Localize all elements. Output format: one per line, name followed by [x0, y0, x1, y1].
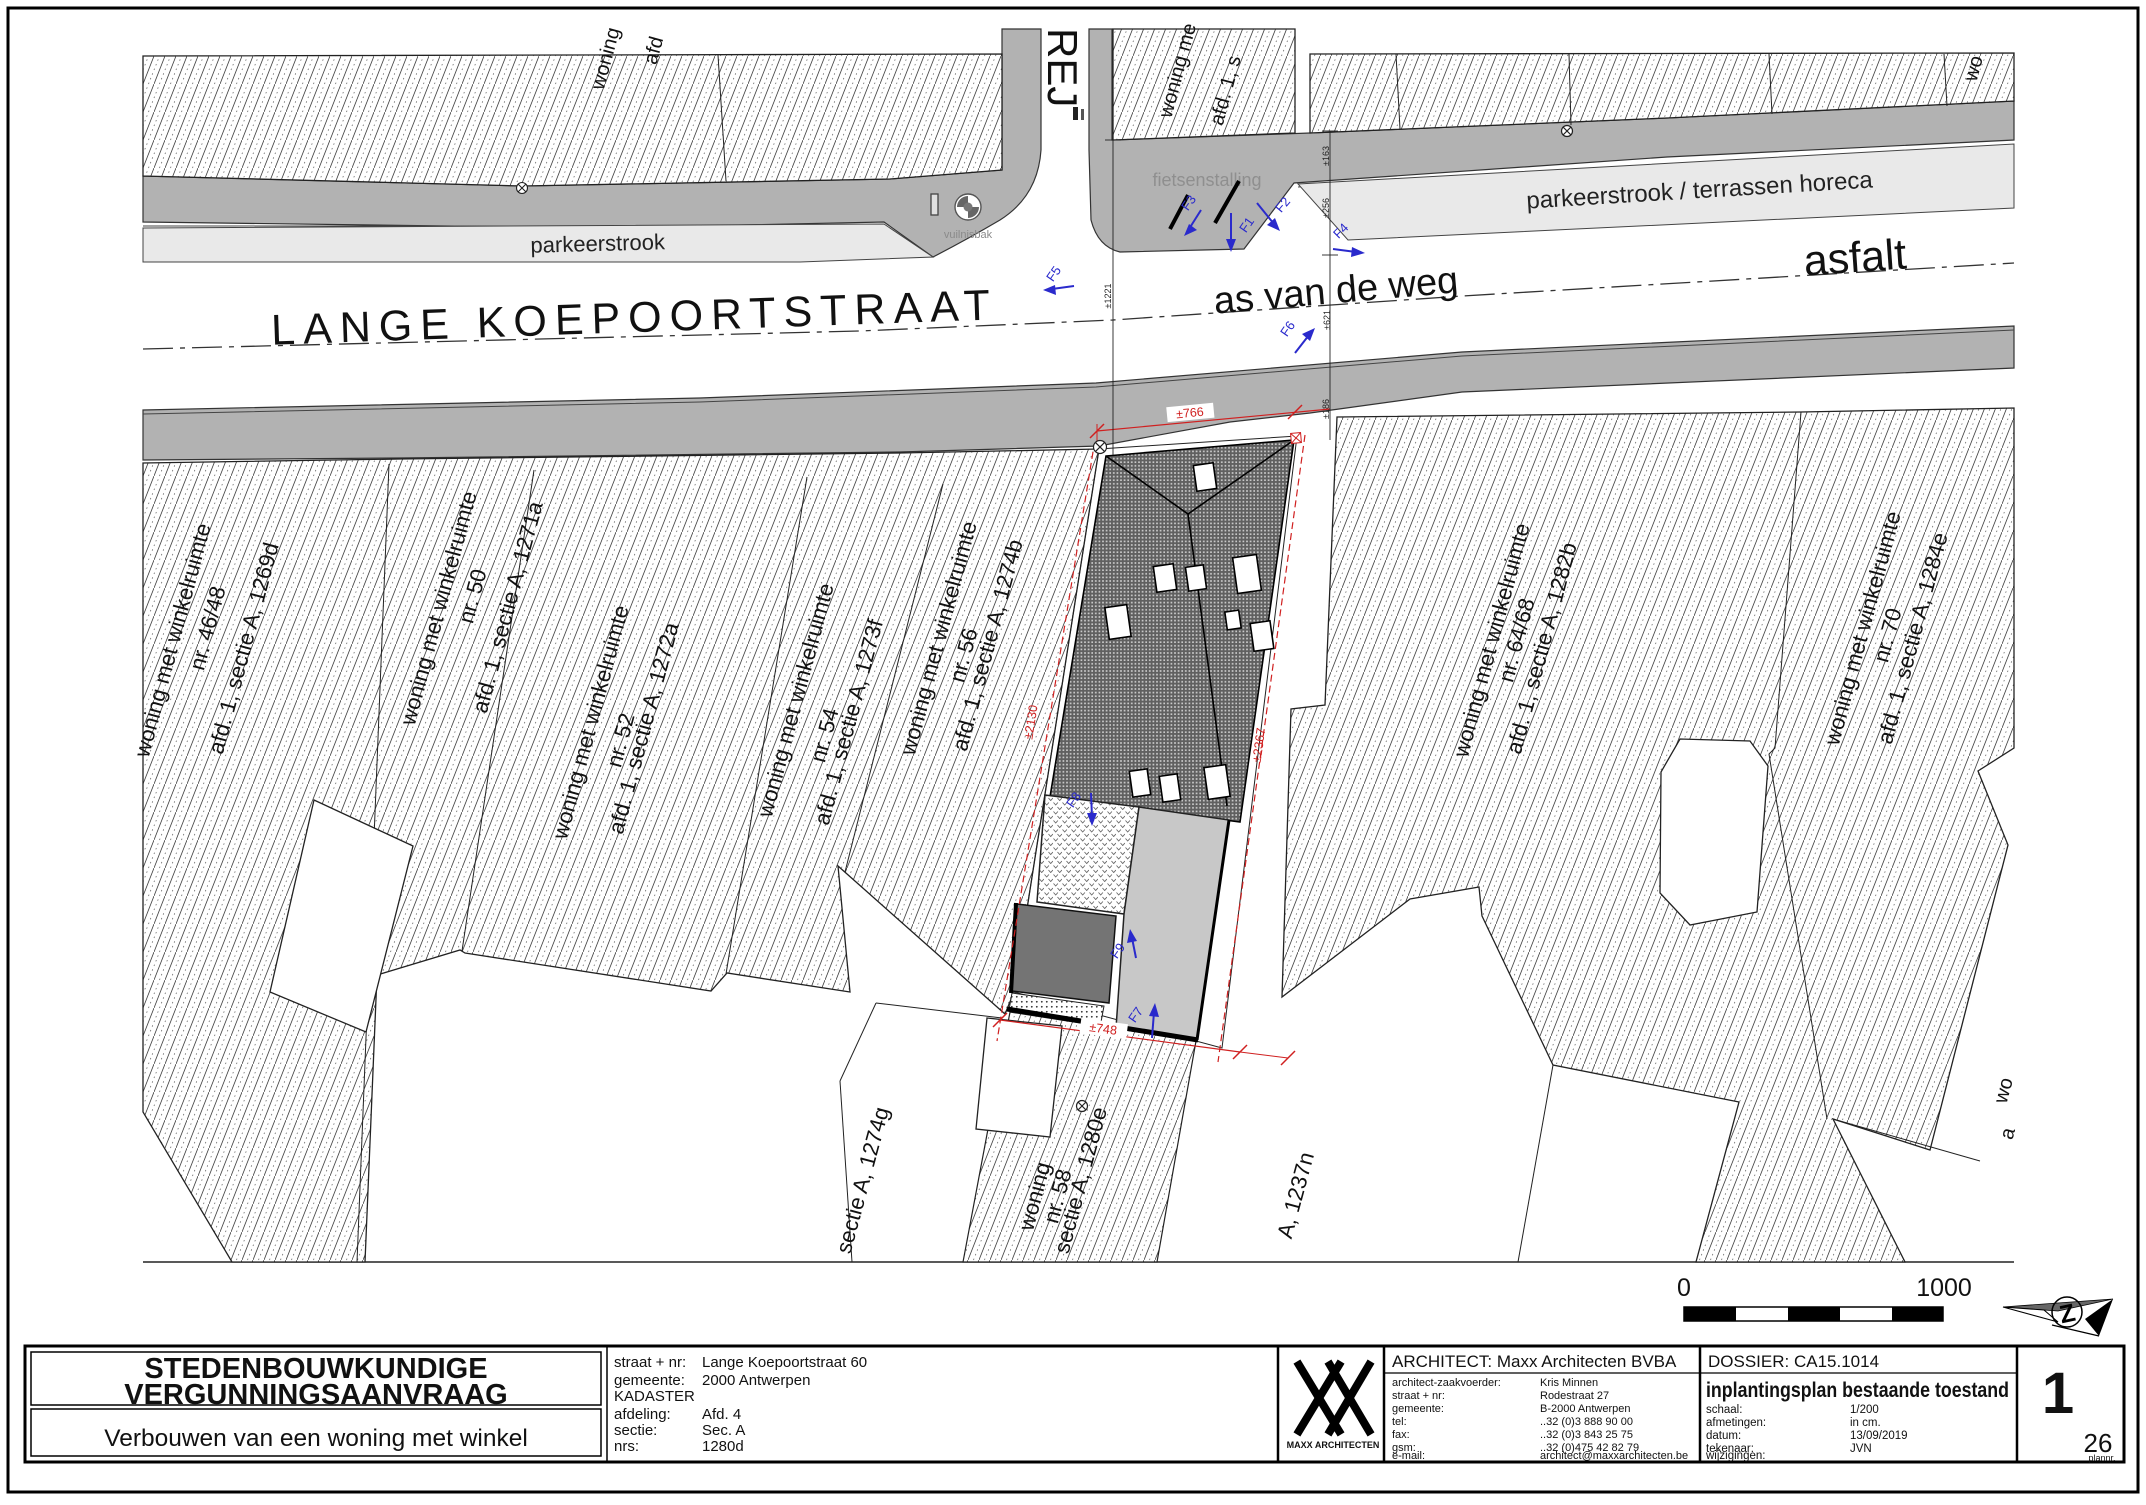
- svg-text:0: 0: [1677, 1274, 1691, 1302]
- svg-text:±766: ±766: [1175, 405, 1204, 422]
- svg-text:MAXX ARCHITECTEN: MAXX ARCHITECTEN: [1287, 1440, 1380, 1450]
- svg-text:1280d: 1280d: [702, 1438, 744, 1455]
- svg-text:in cm.: in cm.: [1850, 1417, 1881, 1429]
- svg-text:2000 Antwerpen: 2000 Antwerpen: [702, 1372, 810, 1389]
- svg-text:straat + nr:: straat + nr:: [614, 1354, 686, 1371]
- svg-text:ARCHITECT: Maxx Architecten BV: ARCHITECT: Maxx Architecten BVBA: [1392, 1352, 1677, 1371]
- svg-text:schaal:: schaal:: [1706, 1404, 1742, 1416]
- svg-text:Sec. A: Sec. A: [702, 1422, 745, 1439]
- svg-text:fietsenstalling: fietsenstalling: [1152, 170, 1261, 190]
- svg-text:VERGUNNINGSAANVRAAG: VERGUNNINGSAANVRAAG: [124, 1379, 507, 1411]
- svg-text:wijzigingen:: wijzigingen:: [1705, 1450, 1765, 1462]
- svg-text:Rodestraat 27: Rodestraat 27: [1540, 1390, 1609, 1402]
- svg-text:Afd. 4: Afd. 4: [702, 1406, 741, 1423]
- svg-text:±256: ±256: [1321, 198, 1331, 218]
- svg-text:1000: 1000: [1916, 1274, 1972, 1302]
- svg-text:DOSSIER: CA15.1014: DOSSIER: CA15.1014: [1708, 1352, 1879, 1371]
- svg-text:REJ: REJ: [1039, 28, 1086, 107]
- svg-text:fax:: fax:: [1392, 1429, 1410, 1441]
- svg-text:gemeente:: gemeente:: [614, 1372, 685, 1389]
- svg-text:afdeling:: afdeling:: [614, 1406, 671, 1423]
- svg-text:nrs:: nrs:: [614, 1438, 639, 1455]
- svg-text:parkeerstrook: parkeerstrook: [530, 229, 666, 258]
- svg-text:asfalt: asfalt: [1802, 231, 1908, 286]
- svg-text:architect@maxxarchitecten.be: architect@maxxarchitecten.be: [1540, 1450, 1688, 1462]
- svg-text:1: 1: [2042, 1361, 2074, 1426]
- svg-text:sectie:: sectie:: [614, 1422, 657, 1439]
- svg-text:1/200: 1/200: [1850, 1404, 1879, 1416]
- svg-text:13/09/2019: 13/09/2019: [1850, 1430, 1908, 1442]
- svg-text:B-2000 Antwerpen: B-2000 Antwerpen: [1540, 1403, 1631, 1415]
- svg-text:gemeente:: gemeente:: [1392, 1403, 1444, 1415]
- svg-text:datum:: datum:: [1706, 1430, 1741, 1442]
- svg-text:Kris Minnen: Kris Minnen: [1540, 1377, 1598, 1389]
- svg-text:..32 (0)3 888 90 00: ..32 (0)3 888 90 00: [1540, 1416, 1633, 1428]
- svg-text:vuilnisbak: vuilnisbak: [944, 229, 993, 241]
- svg-text:inplantingsplan bestaande toes: inplantingsplan bestaande toestand: [1706, 1379, 2009, 1402]
- svg-text:Verbouwen van een woning met w: Verbouwen van een woning met winkel: [104, 1425, 528, 1452]
- svg-text:±163: ±163: [1321, 146, 1331, 166]
- svg-text:afmetingen:: afmetingen:: [1706, 1417, 1766, 1429]
- svg-text:tel:: tel:: [1392, 1416, 1407, 1428]
- svg-text:straat + nr:: straat + nr:: [1392, 1390, 1445, 1402]
- svg-text:plannr.: plannr.: [2088, 1453, 2115, 1463]
- svg-text:architect-zaakvoerder:: architect-zaakvoerder:: [1392, 1377, 1501, 1389]
- svg-text:±1221: ±1221: [1103, 284, 1113, 309]
- svg-text:Lange Koepoortstraat 60: Lange Koepoortstraat 60: [702, 1354, 867, 1371]
- svg-text:e-mail:: e-mail:: [1392, 1450, 1425, 1462]
- svg-text:JVN: JVN: [1850, 1443, 1872, 1455]
- svg-text:±186: ±186: [1321, 399, 1331, 419]
- svg-text:..32 (0)3 843 25 75: ..32 (0)3 843 25 75: [1540, 1429, 1633, 1441]
- svg-text:KADASTER: KADASTER: [614, 1388, 695, 1405]
